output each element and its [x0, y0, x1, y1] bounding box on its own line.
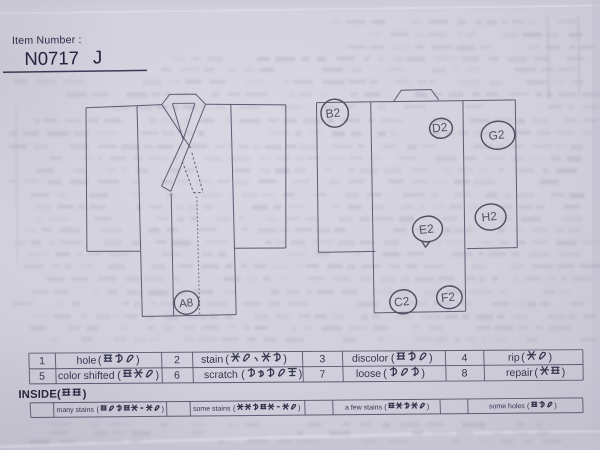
svg-text:stain: stain [201, 354, 223, 366]
svg-text:): ) [429, 352, 433, 364]
svg-text:D2: D2 [431, 120, 448, 136]
svg-text:J: J [93, 46, 103, 67]
svg-text:many stains: many stains [56, 407, 94, 414]
svg-text:Item Number :: Item Number : [12, 34, 82, 47]
svg-text:): ) [421, 368, 425, 380]
svg-text:): ) [162, 404, 165, 413]
svg-text:(: ( [117, 370, 121, 382]
svg-text:(: ( [534, 367, 538, 379]
svg-text:(: ( [241, 369, 245, 381]
svg-text:(: ( [225, 354, 229, 366]
svg-text:6: 6 [174, 370, 180, 382]
svg-text:A8: A8 [179, 297, 194, 310]
svg-text:7: 7 [319, 369, 325, 381]
svg-text:G2: G2 [488, 127, 506, 143]
svg-text:2: 2 [174, 354, 180, 366]
svg-text:loose: loose [356, 368, 381, 380]
svg-text:): ) [299, 368, 303, 380]
svg-text:some holes: some holes [489, 403, 525, 410]
svg-text:): ) [136, 354, 140, 366]
svg-text:(: ( [98, 355, 102, 367]
svg-text:): ) [562, 367, 566, 379]
svg-text:1: 1 [39, 355, 45, 367]
svg-text:(: ( [521, 352, 525, 364]
svg-text:N0717: N0717 [24, 47, 79, 69]
svg-text:8: 8 [462, 367, 468, 379]
svg-text:): ) [83, 388, 87, 400]
svg-text:hole: hole [76, 355, 96, 367]
svg-text:(: ( [57, 389, 61, 401]
svg-text:): ) [283, 353, 287, 365]
svg-text:C2: C2 [393, 294, 410, 310]
svg-text:): ) [548, 351, 552, 363]
svg-text:): ) [554, 401, 557, 410]
svg-text:a few stains: a few stains [345, 404, 383, 411]
svg-text:some stains: some stains [193, 406, 231, 413]
svg-text:(: ( [383, 368, 387, 380]
svg-text:F2: F2 [440, 290, 456, 305]
svg-text:): ) [298, 403, 301, 412]
svg-text:B2: B2 [325, 105, 341, 120]
svg-text:): ) [155, 369, 159, 381]
svg-text:4: 4 [462, 352, 468, 364]
svg-text:5: 5 [39, 371, 45, 383]
svg-text:3: 3 [319, 353, 325, 365]
svg-text:rip: rip [508, 352, 520, 364]
svg-text:E2: E2 [418, 221, 434, 236]
svg-text:scratch: scratch [204, 369, 238, 381]
svg-text:): ) [427, 402, 430, 411]
svg-text:discolor: discolor [352, 352, 389, 364]
svg-text:INSIDE: INSIDE [18, 389, 57, 401]
svg-text:H2: H2 [481, 209, 498, 225]
svg-text:color shifted: color shifted [58, 370, 115, 382]
svg-text:(: ( [391, 352, 395, 364]
svg-text:repair: repair [506, 367, 533, 379]
